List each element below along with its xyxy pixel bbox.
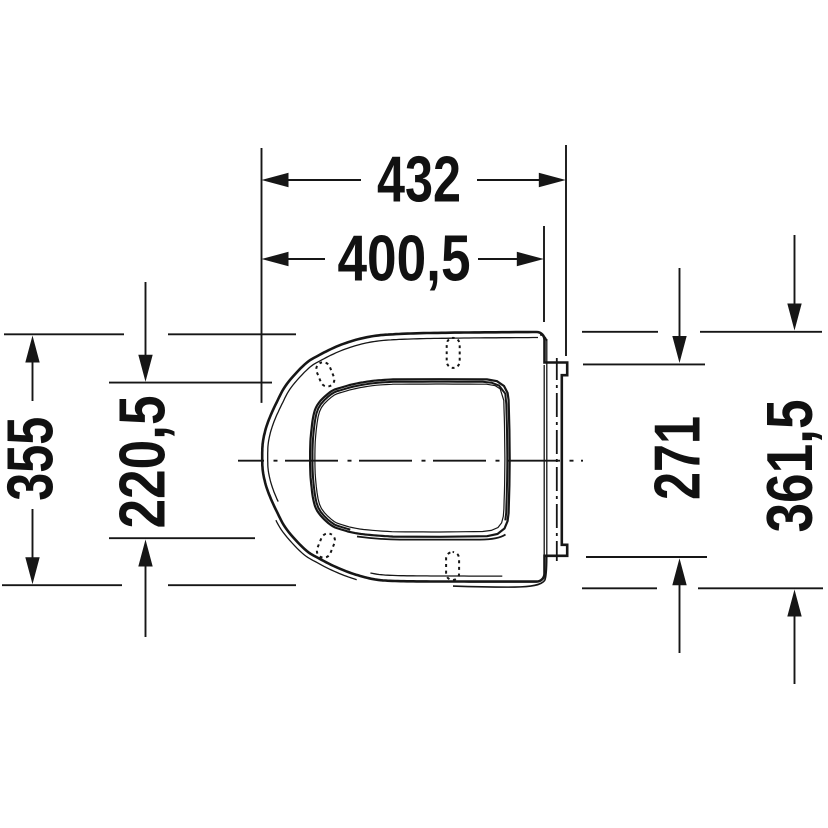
- svg-text:271: 271: [641, 416, 714, 500]
- svg-text:355: 355: [0, 417, 67, 501]
- svg-text:400,5: 400,5: [337, 221, 470, 294]
- svg-text:220,5: 220,5: [105, 395, 178, 528]
- svg-text:432: 432: [377, 143, 461, 216]
- svg-text:361,5: 361,5: [753, 399, 826, 532]
